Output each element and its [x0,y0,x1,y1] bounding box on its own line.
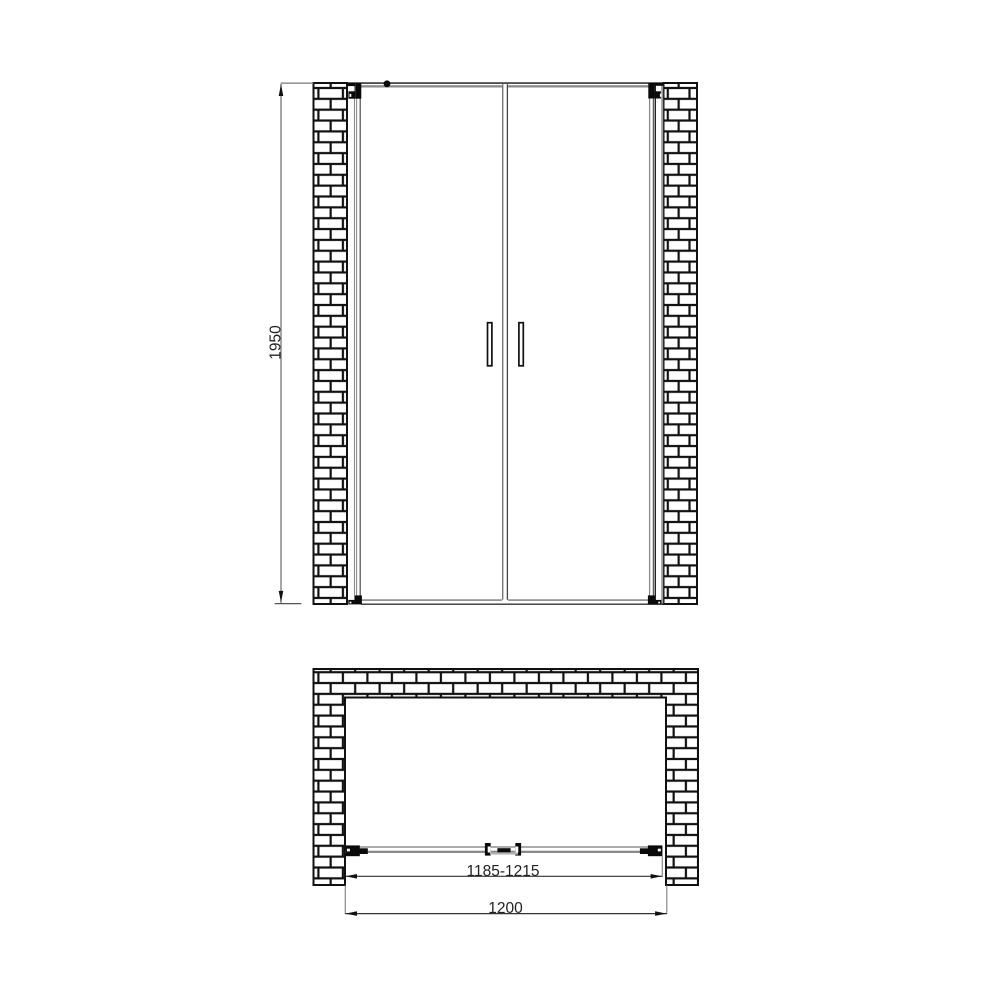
svg-text:1185-1215: 1185-1215 [467,863,540,880]
svg-text:1950: 1950 [268,325,285,360]
svg-text:1200: 1200 [488,900,523,917]
